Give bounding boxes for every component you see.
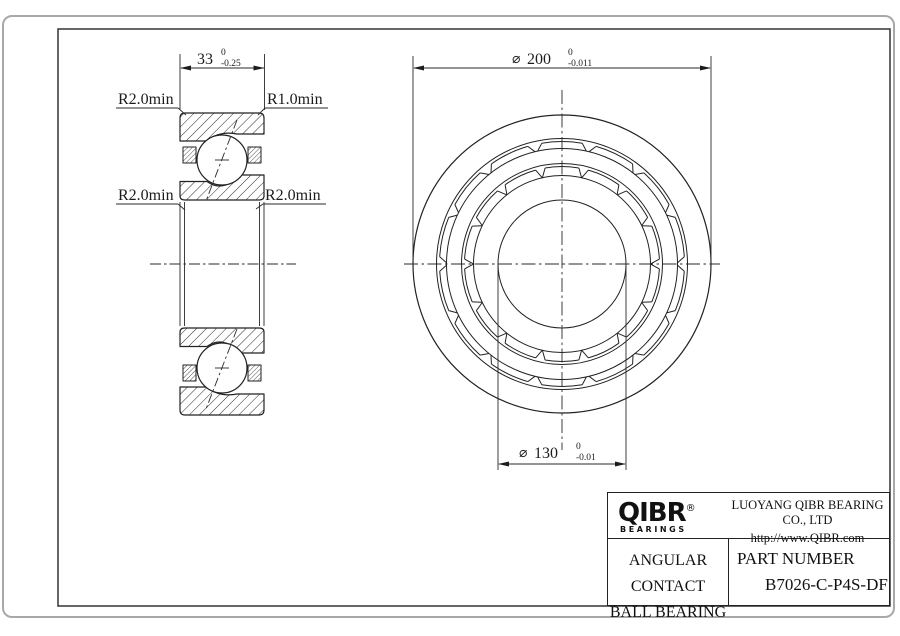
pocket-edge [465, 264, 474, 269]
pocket-edge [455, 205, 459, 213]
pocket-edge [480, 173, 489, 175]
dim-od-value: 200 [527, 51, 551, 68]
dim-width-value: 33 [197, 51, 213, 68]
arrow-left [180, 66, 191, 71]
dim-od-tol-upper: 0 [568, 48, 573, 58]
section-top [180, 113, 264, 201]
pocket-edge [617, 333, 619, 343]
cage-right-bottom [248, 365, 261, 381]
product-type: ANGULAR CONTACT BALL BEARING [608, 539, 729, 605]
label-r-mid-right: R2.0min [265, 187, 321, 204]
pocket-arc [627, 311, 648, 338]
pocket-edge [635, 354, 644, 356]
pocket-edge [476, 217, 482, 225]
pocket-arc [455, 173, 480, 205]
dim-bore-value: 130 [534, 445, 558, 462]
pocket-edge [617, 191, 626, 195]
pocket-edge [617, 185, 619, 195]
dim-width: 33 0 -0.25 [180, 48, 265, 110]
section-bottom [180, 328, 264, 415]
pocket-edge [651, 264, 660, 269]
section-centerlines [150, 202, 296, 326]
pocket-edge [440, 257, 447, 263]
arrow-right [254, 66, 265, 71]
pocket-edge [589, 376, 596, 381]
pocket-arc [455, 324, 480, 356]
dim-bore-symbol: ⌀ [519, 445, 528, 461]
pocket-arc [644, 324, 669, 356]
logo-text: QIBR® [618, 496, 726, 526]
part-number-label: PART NUMBER [737, 546, 889, 572]
pocket-edge [528, 146, 535, 151]
product-line2: BALL BEARING [608, 600, 728, 626]
label-r-mid-left: R2.0min [118, 187, 174, 204]
front-view-centerlines [404, 90, 720, 450]
pocket-edge [579, 168, 582, 178]
cage-left-top [183, 147, 196, 163]
pocket-edge [536, 170, 543, 178]
product-line1: ANGULAR CONTACT [608, 548, 728, 600]
pocket-edge [678, 257, 685, 263]
pocket-edge [642, 303, 648, 311]
pocket-edge [666, 315, 670, 323]
pocket-edge [440, 265, 447, 271]
company-info: LUOYANG QIBR BEARING CO., LTD http://www… [726, 493, 889, 538]
pocket-edge [542, 168, 545, 178]
dim-bore-tol-lower: -0.01 [576, 453, 596, 463]
part-number-value: B7026-C-P4S-DF [737, 572, 889, 598]
pocket-edge [666, 205, 670, 213]
cage-left-bottom [183, 365, 196, 381]
registered-mark: ® [686, 503, 696, 514]
pocket-arc [652, 269, 660, 302]
drawing-canvas: 33 0 -0.25 R2.0min R1.0min R2.0min R2.0m… [0, 0, 900, 636]
pocket-edge [480, 354, 489, 356]
pocket-arc [476, 191, 497, 218]
pocket-edge [476, 303, 482, 311]
dim-width-tol-lower: -0.25 [221, 59, 241, 69]
pocket-arc [476, 311, 497, 338]
title-block-body: ANGULAR CONTACT BALL BEARING PART NUMBER… [608, 539, 889, 605]
pocket-edge [642, 217, 648, 225]
pocket-edge [579, 350, 582, 360]
section-view: 33 0 -0.25 R2.0min R1.0min R2.0min R2.0m… [116, 48, 328, 415]
pocket-arc [465, 269, 473, 302]
pocket-edge [536, 350, 543, 358]
label-r-top-right: R1.0min [267, 91, 323, 108]
pocket-edge [505, 333, 507, 343]
label-r-top-left: R2.0min [118, 91, 174, 108]
dim-od-symbol: ⌀ [512, 51, 521, 67]
pocket-edge [505, 185, 507, 195]
pocket-arc [652, 226, 660, 259]
logo-name: QIBR [618, 498, 686, 528]
dim-width-tol-upper: 0 [221, 48, 226, 58]
pocket-edge [678, 265, 685, 271]
pocket-edge [528, 376, 535, 381]
pocket-edge [582, 350, 589, 358]
pocket-edge [651, 259, 660, 264]
company-logo: QIBR® BEARINGS [608, 493, 726, 538]
pocket-edge [582, 170, 589, 178]
pocket-arc [465, 226, 473, 259]
pocket-arc [627, 191, 648, 218]
pocket-edge [498, 333, 507, 337]
dim-bore-tol-upper: 0 [576, 442, 581, 452]
part-number-cell: PART NUMBER B7026-C-P4S-DF [729, 539, 889, 605]
dim-od-tol-lower: -0.011 [568, 59, 592, 69]
pocket-edge [498, 191, 507, 195]
company-name: LUOYANG QIBR BEARING CO., LTD [726, 498, 889, 528]
title-block-header: QIBR® BEARINGS LUOYANG QIBR BEARING CO.,… [608, 493, 889, 539]
pocket-edge [465, 259, 474, 264]
pocket-edge [542, 350, 545, 360]
pocket-arc [644, 173, 669, 205]
title-block: QIBR® BEARINGS LUOYANG QIBR BEARING CO.,… [607, 492, 890, 606]
pocket-edge [589, 146, 596, 151]
pocket-edge [617, 333, 626, 337]
logo-subtitle: BEARINGS [618, 525, 726, 534]
pocket-edge [635, 173, 644, 175]
cage-right-top [248, 147, 261, 163]
pocket-edge [455, 315, 459, 323]
